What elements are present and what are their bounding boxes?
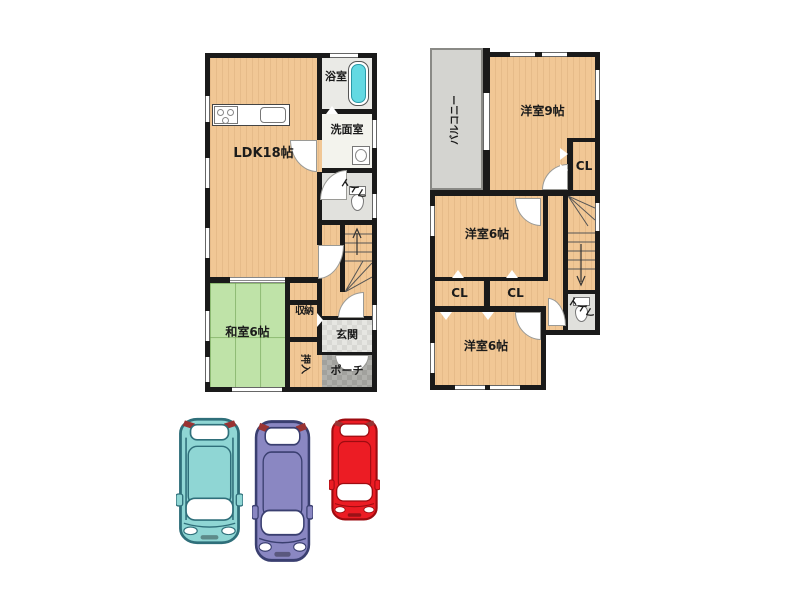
- label-bath: 浴室: [322, 71, 350, 82]
- red-car: [329, 417, 380, 522]
- first-floor-plan: LDK18帖 浴室 洗面室 トイレ 和室6帖 収納 押入 玄関 ポーチ: [205, 53, 377, 392]
- window: [205, 96, 210, 122]
- wall: [543, 196, 548, 281]
- window: [330, 53, 358, 58]
- purple-car: [252, 418, 313, 564]
- wall: [290, 337, 320, 342]
- window: [455, 385, 485, 390]
- label-washroom: 洗面室: [322, 124, 372, 135]
- staircase-1f: [345, 225, 372, 292]
- staircase-2f: [568, 196, 595, 290]
- wall: [317, 172, 322, 245]
- label-porch: ポーチ: [322, 365, 372, 376]
- label-tatami: 和室6帖: [210, 326, 285, 338]
- wall: [285, 283, 290, 387]
- stove: [214, 106, 238, 124]
- wall: [430, 385, 546, 390]
- kitchen-sink: [260, 107, 286, 123]
- wall: [541, 306, 546, 390]
- label-closet-center: CL: [490, 287, 541, 299]
- label-ldk: LDK18帖: [210, 147, 317, 160]
- window: [372, 305, 377, 330]
- window: [372, 194, 377, 218]
- window: [595, 70, 600, 100]
- label-closet-right: CL: [573, 160, 595, 172]
- bathtub: [348, 61, 369, 106]
- teal-car: [176, 416, 243, 546]
- label-bedroom6-bottom: 洋室6帖: [435, 340, 537, 352]
- window: [510, 52, 535, 57]
- wall: [546, 330, 600, 335]
- wall: [322, 168, 372, 173]
- window: [372, 120, 377, 148]
- window: [542, 52, 567, 57]
- label-futon-closet: 押入: [299, 354, 309, 374]
- window: [205, 228, 210, 258]
- window: [205, 357, 210, 382]
- second-floor-plan: バルコニー 洋室9帖 CL 洋室6帖 CL CL 洋室6帖 トイレ: [430, 48, 600, 390]
- wash-basin: [352, 146, 370, 165]
- window: [595, 203, 600, 231]
- window: [232, 387, 282, 392]
- window: [205, 158, 210, 188]
- label-closet-left: CL: [435, 287, 484, 299]
- sliding-door: [230, 277, 285, 283]
- label-bedroom6-middle: 洋室6帖: [435, 228, 539, 240]
- label-balcony: バルコニー: [451, 95, 461, 145]
- label-entrance: 玄関: [322, 329, 372, 340]
- floorplan-page: LDK18帖 浴室 洗面室 トイレ 和室6帖 収納 押入 玄関 ポーチ: [0, 0, 800, 600]
- door-arc: [338, 292, 364, 318]
- window: [490, 385, 520, 390]
- window: [483, 93, 490, 150]
- label-storage: 収納: [290, 307, 318, 317]
- label-bedroom9: 洋室9帖: [490, 105, 595, 117]
